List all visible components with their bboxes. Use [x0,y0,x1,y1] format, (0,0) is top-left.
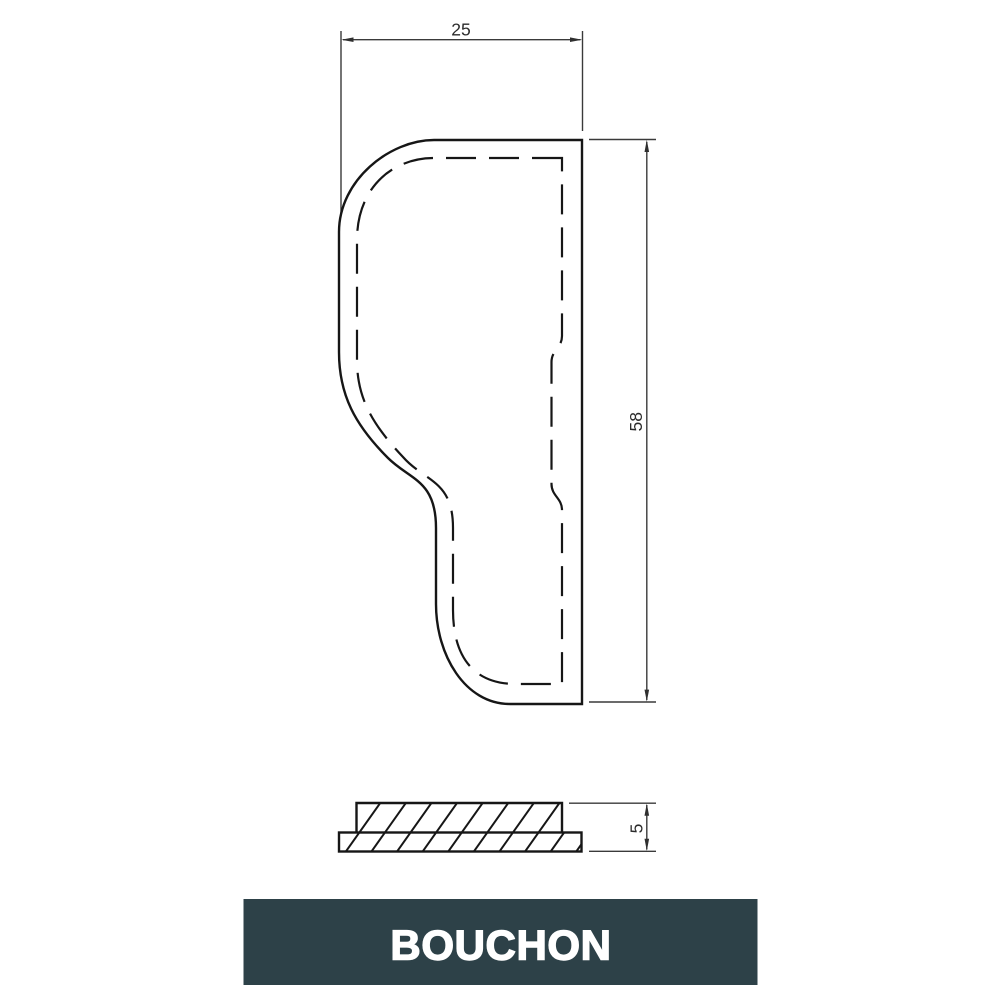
svg-text:58: 58 [626,412,646,431]
svg-text:5: 5 [627,824,647,834]
svg-text:25: 25 [451,20,470,40]
svg-text:BOUCHON: BOUCHON [390,922,611,969]
